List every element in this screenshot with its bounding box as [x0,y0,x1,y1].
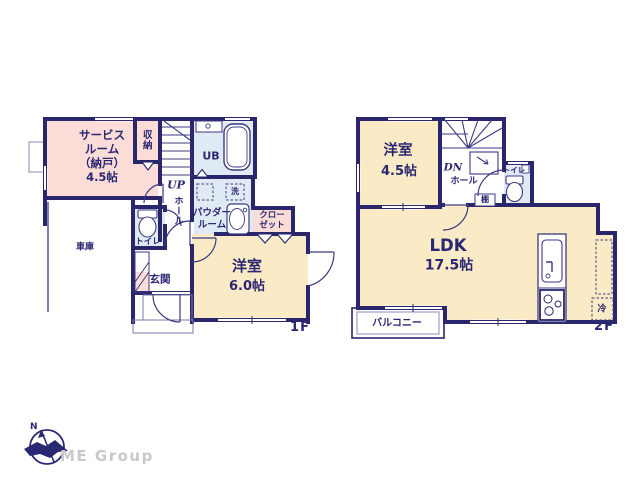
f2-stove-icon [540,290,564,320]
f2-hall-label: ホール [450,177,477,188]
f2-toilet-label: トイレ [503,165,526,174]
f2-western-room-label: 洋室 [384,143,413,161]
f1-exterior-shutter [29,142,44,172]
f1-entrance-label: 玄関 [150,274,171,287]
company-logo-text: ME Group [60,447,154,465]
f1-bathtub-icon [224,124,250,170]
f1-stairs-icon [162,121,192,175]
f1-powder-room-label: パウダー ルーム [193,207,231,230]
f2-ldk-label: LDK [430,236,467,256]
f2-balcony-label: バルコニー [372,318,422,330]
floor-plan-page: サービス ルーム （納戸） 4.5帖 収納 UP ホール UB 洗 パウダー ル… [0,0,640,480]
f1-entrance-porch [133,295,193,333]
f1-bath-counter-icon [196,121,222,132]
f2-shelf-label: 棚 [481,195,489,205]
f2-ldk-area [358,205,615,322]
f1-hall-label: ホール [172,196,183,226]
f1-western-room-area-label: 6.0帖 [229,279,265,295]
f1-shoe-cabinet-icon [135,252,149,292]
f1-closet-label: クロー ゼット [259,211,285,232]
f1-western-room-label: 洋室 [232,257,262,275]
f1-unit-bath-label: UB [202,149,219,162]
f2-ldk-area-label: 17.5帖 [425,257,474,274]
f1-floor-label: 1F [290,320,310,336]
f1-service-room-label: サービス ルーム （納戸） 4.5帖 [79,128,125,184]
f1-storage-label: 収納 [140,130,152,151]
f2-stairs-down-label: DN [444,162,463,175]
f2-western-room-area-label: 4.5帖 [381,164,417,180]
f1-stairs-up-label: UP [167,178,185,191]
north-label: N [30,422,38,432]
f1-laundry-label: 洗 [231,187,239,197]
f1-toilet-label: トイレ [135,237,161,247]
floor-plan-canvas [0,0,640,480]
f2-floor-label: 2F [594,319,614,335]
f2-western-room-area [358,119,440,207]
f1-western-room-area [192,234,308,320]
f1-toilet-icon [138,210,157,237]
f1-garage-label: 車庫 [76,243,94,254]
f2-refrigerator-label: 冷 [597,305,606,316]
